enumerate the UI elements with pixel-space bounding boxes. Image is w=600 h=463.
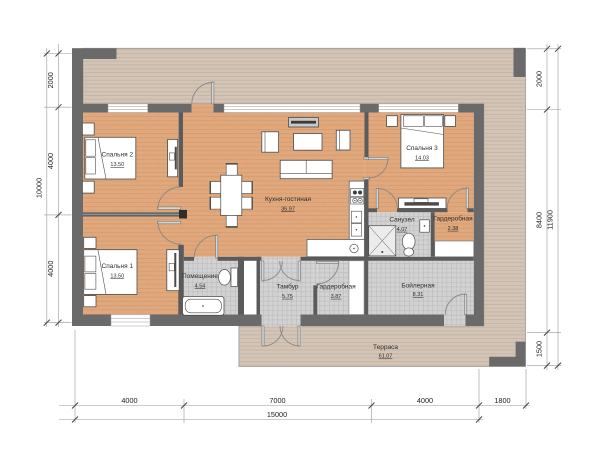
- svg-text:Тамбур: Тамбур: [276, 283, 298, 291]
- svg-text:4000: 4000: [46, 153, 55, 169]
- svg-text:2000: 2000: [535, 71, 544, 87]
- svg-text:14.03: 14.03: [415, 155, 429, 161]
- svg-text:Терраса: Терраса: [373, 344, 398, 351]
- svg-text:4.54: 4.54: [195, 283, 206, 289]
- svg-text:Спальня 3: Спальня 3: [406, 145, 438, 152]
- svg-text:Санузел: Санузел: [389, 217, 415, 224]
- svg-text:4000: 4000: [417, 396, 433, 405]
- svg-text:2000: 2000: [46, 72, 55, 88]
- svg-text:2.38: 2.38: [448, 226, 459, 232]
- svg-text:Бойлерная: Бойлерная: [401, 282, 435, 290]
- svg-text:61.07: 61.07: [379, 354, 393, 360]
- svg-text:8400: 8400: [535, 212, 544, 228]
- svg-text:Спальня 2: Спальня 2: [102, 152, 134, 159]
- svg-text:13.50: 13.50: [110, 273, 124, 279]
- svg-text:Помещение: Помещение: [182, 273, 218, 280]
- svg-text:36.97: 36.97: [281, 206, 295, 212]
- svg-text:10000: 10000: [34, 178, 43, 198]
- svg-text:4000: 4000: [46, 261, 55, 277]
- svg-text:4.07: 4.07: [397, 227, 408, 233]
- svg-text:11900: 11900: [546, 210, 555, 230]
- svg-text:Гардеробная: Гардеробная: [316, 283, 356, 291]
- svg-text:7000: 7000: [269, 396, 285, 405]
- svg-text:1800: 1800: [494, 396, 510, 405]
- svg-text:5.75: 5.75: [282, 294, 293, 300]
- svg-text:Кухня-гостиная: Кухня-гостиная: [265, 196, 311, 203]
- svg-text:Спальня 1: Спальня 1: [102, 263, 134, 270]
- svg-text:15000: 15000: [267, 410, 287, 419]
- svg-text:13.50: 13.50: [110, 162, 124, 168]
- svg-text:4000: 4000: [121, 396, 137, 405]
- svg-text:Гардеробная: Гардеробная: [433, 215, 473, 223]
- svg-text:8.31: 8.31: [413, 292, 424, 298]
- svg-text:3.87: 3.87: [331, 294, 342, 300]
- svg-text:1500: 1500: [535, 341, 544, 357]
